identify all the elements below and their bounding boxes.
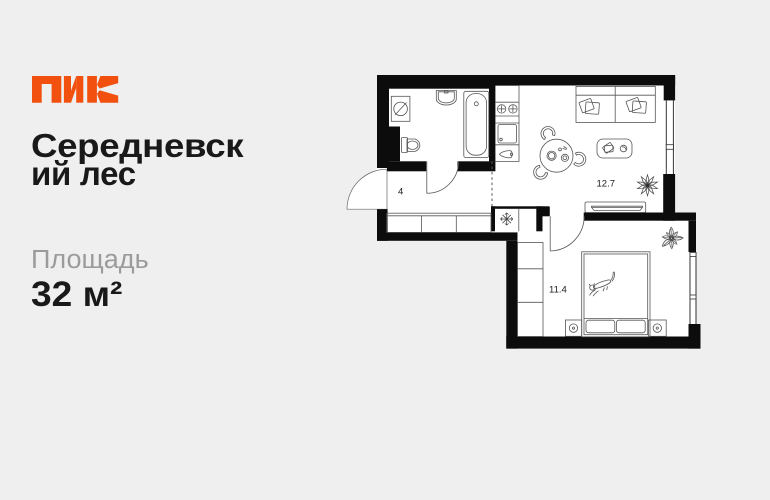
svg-text:4: 4 bbox=[398, 187, 403, 198]
svg-text:11.4: 11.4 bbox=[549, 285, 567, 296]
svg-text:12.7: 12.7 bbox=[597, 179, 616, 190]
